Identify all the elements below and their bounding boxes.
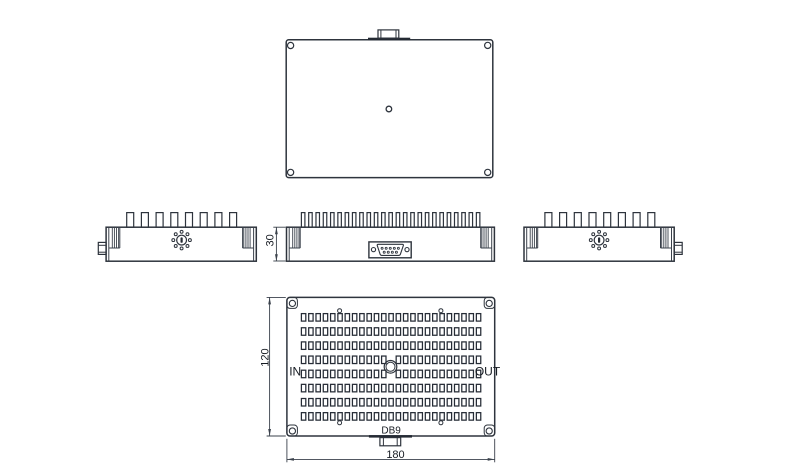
svg-text:OUT: OUT [475,365,501,379]
svg-text:DB9: DB9 [381,426,401,437]
svg-text:IN: IN [289,365,301,379]
svg-text:30: 30 [264,234,276,246]
svg-text:120: 120 [259,348,271,366]
svg-text:180: 180 [386,449,404,461]
